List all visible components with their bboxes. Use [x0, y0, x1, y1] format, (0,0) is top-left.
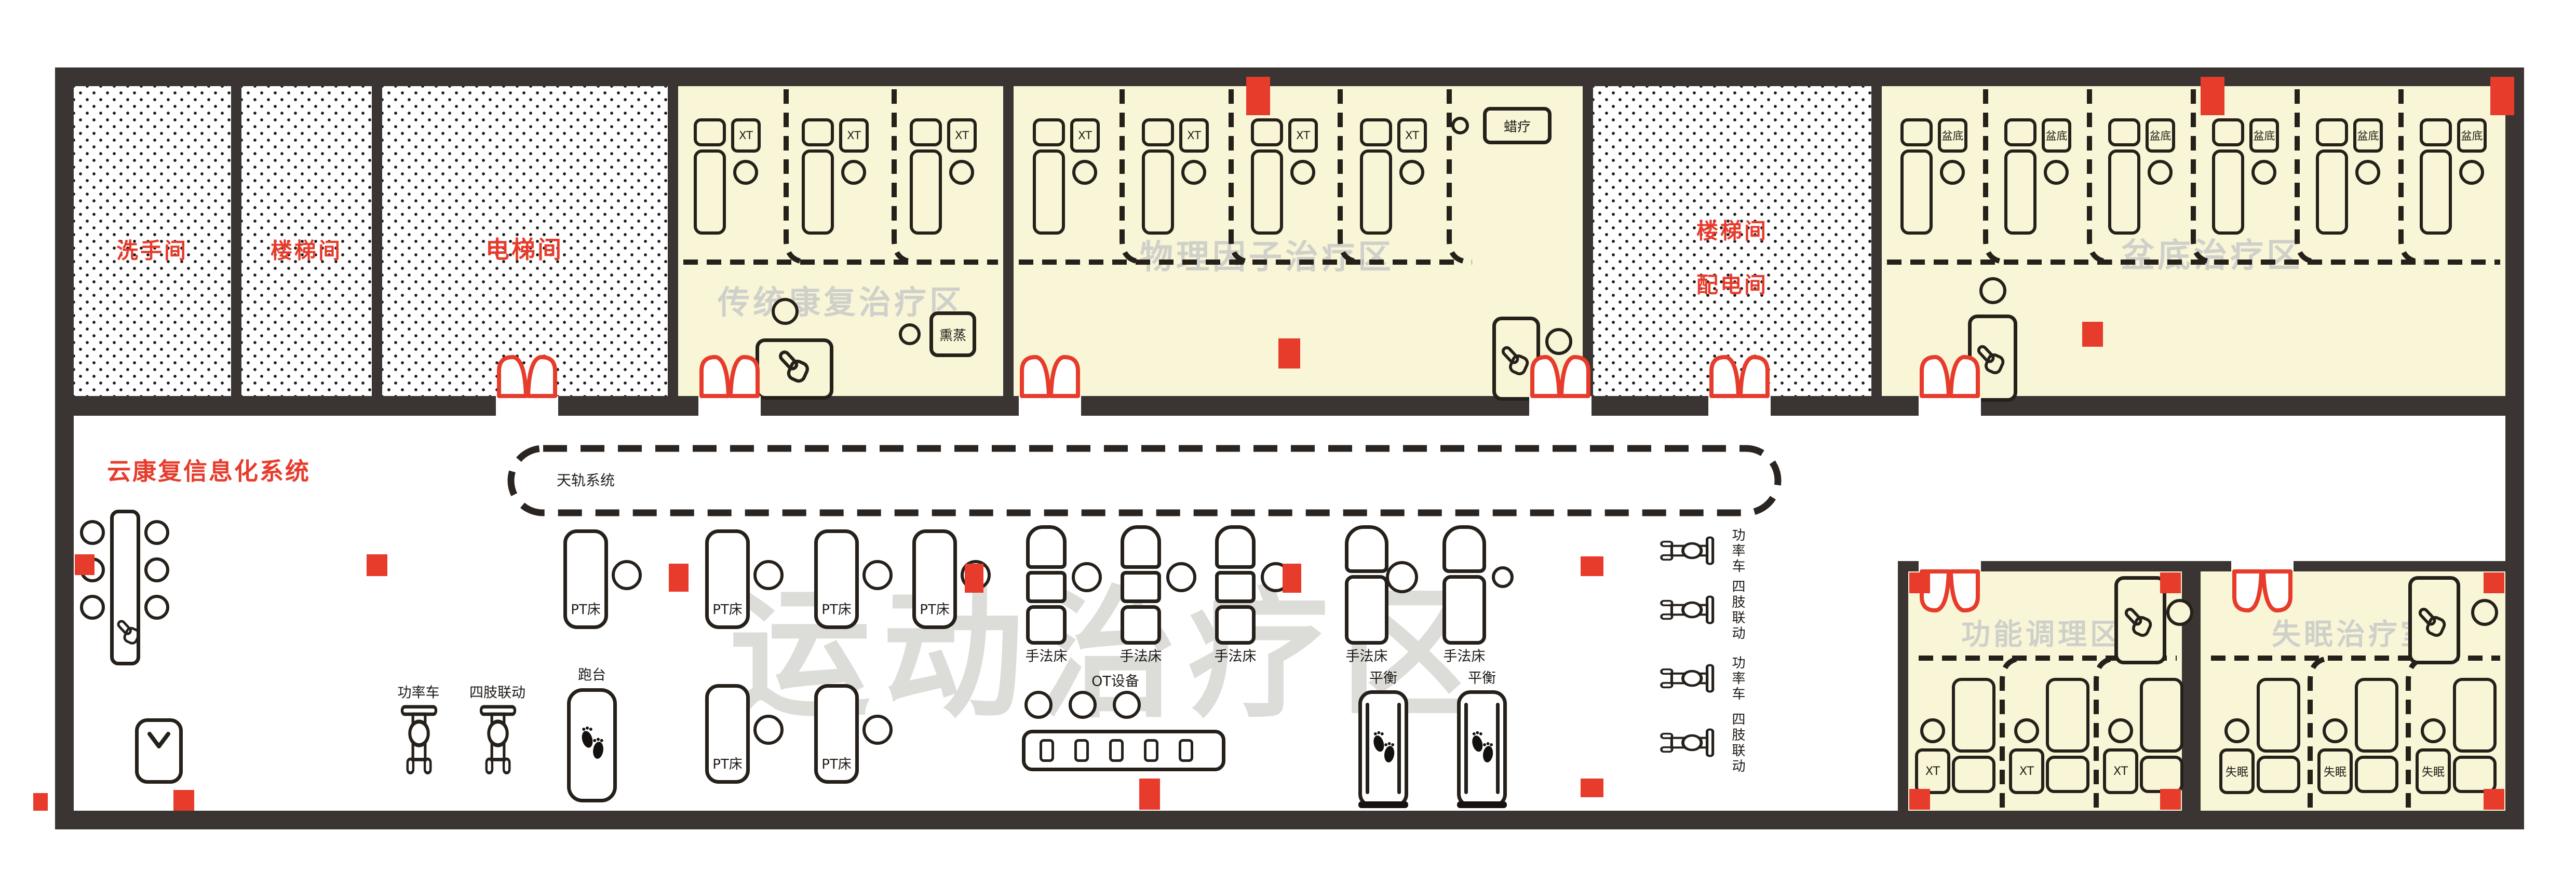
manual-bed-head	[1345, 525, 1388, 573]
red-marker	[965, 564, 983, 593]
room-name-washroom: 洗手间	[116, 234, 188, 265]
system-title: 云康复信息化系统	[107, 453, 311, 487]
ceiling-track-label: 天轨系统	[557, 469, 615, 490]
door-gap	[496, 396, 558, 416]
desk	[2408, 576, 2460, 664]
bed	[2212, 149, 2244, 235]
device-box: 盆底	[2042, 118, 2071, 153]
manual-bed-mid	[1215, 571, 1256, 603]
red-marker	[1139, 779, 1160, 810]
manual-bed-head	[1121, 525, 1161, 569]
stool-icon	[949, 160, 974, 185]
watermark-pelvic-floor: 盆底治疗区	[2121, 229, 2303, 277]
door-gap	[1019, 396, 1081, 416]
bed-pillow	[910, 118, 942, 146]
treadmill-label: 跑台	[578, 664, 606, 684]
desk	[1968, 315, 2017, 402]
stool-icon	[80, 595, 105, 620]
bed-pillow	[1900, 118, 1933, 146]
treadmill	[567, 688, 617, 802]
manual-bed-foot	[1026, 605, 1067, 645]
power-bike-label: 功率车	[398, 681, 440, 702]
stool-icon	[772, 298, 799, 325]
watermark-physical-factor: 物理因子治疗区	[1140, 230, 1394, 278]
wall	[2182, 561, 2201, 811]
bed-pillow	[2004, 118, 2036, 146]
device-box: XT	[1397, 118, 1427, 153]
wall	[1003, 86, 1014, 396]
wall	[1898, 561, 1908, 811]
bed	[1360, 149, 1392, 235]
bed	[1033, 149, 1065, 235]
stool-icon	[2355, 160, 2380, 185]
wall-left	[55, 67, 74, 829]
bed-pillow	[2108, 118, 2140, 146]
pt-bed-label: PT床	[709, 754, 746, 773]
device-box: XT	[731, 118, 761, 153]
stool-icon	[2108, 718, 2133, 743]
bed-pillow	[2316, 118, 2348, 146]
room-name-stair-power-1: 楼梯间	[1696, 214, 1768, 245]
red-marker	[669, 564, 689, 592]
red-marker	[1278, 338, 1300, 369]
bed	[910, 149, 942, 235]
limb-linkage-label: 四肢联动	[469, 681, 525, 702]
red-marker	[1909, 572, 1930, 593]
manual-bed-head	[1215, 525, 1256, 569]
floor-plan: 云康复信息化系统 天轨系统 洗手间 楼梯间 电梯间 楼梯间 配电间 传统康复治疗…	[0, 0, 2576, 887]
bed	[2257, 678, 2300, 753]
wall	[1871, 86, 1882, 396]
wall	[1898, 561, 2505, 571]
manual-bed-foot	[1121, 605, 1161, 645]
bed	[1142, 149, 1174, 235]
red-marker	[1581, 779, 1603, 797]
bike-machine-icon	[1661, 665, 1712, 691]
balance-bar	[1358, 801, 1408, 808]
fumigation-box: 熏蒸	[929, 311, 976, 357]
device-box: XT	[1915, 748, 1950, 794]
pt-bed-label: PT床	[818, 754, 855, 773]
stool-icon	[1072, 562, 1102, 592]
red-marker	[2484, 789, 2504, 810]
device-box: 失眠	[2219, 748, 2255, 794]
machine-label: 功率车	[1728, 656, 1747, 702]
manual-bed-label: 手法床	[1120, 645, 1162, 665]
bed-pillow	[2140, 756, 2183, 793]
wax-therapy-box: 蜡疗	[1483, 107, 1552, 144]
wall-top	[55, 67, 2524, 86]
stool-icon	[1920, 718, 1945, 743]
device-box: XT	[839, 118, 869, 153]
chair	[135, 718, 183, 784]
device-box: 盆底	[1938, 118, 1967, 153]
manual-bed-mid	[1026, 571, 1067, 603]
stool-icon	[2251, 160, 2276, 185]
pt-bed-label: PT床	[818, 599, 855, 618]
stool-icon	[1072, 160, 1097, 185]
red-marker	[173, 790, 194, 811]
door-gap	[698, 396, 761, 416]
bed	[694, 149, 726, 235]
door-gap	[2231, 561, 2294, 571]
bed-pillow	[802, 118, 834, 146]
pt-bed: PT床	[912, 529, 957, 629]
stool-icon	[144, 557, 169, 582]
bed-pillow	[2420, 118, 2452, 146]
room-name-elevator: 电梯间	[485, 231, 563, 265]
red-marker	[1909, 789, 1930, 810]
stool-icon	[2014, 718, 2039, 743]
bed-pillow	[1251, 118, 1283, 146]
desk	[756, 338, 833, 400]
bed-pillow	[1360, 118, 1392, 146]
manual-bed-label: 手法床	[1215, 645, 1257, 665]
device-box: XT	[2009, 748, 2044, 794]
stool-icon	[1166, 562, 1196, 592]
red-marker	[1246, 77, 1270, 115]
bike-machine-icon	[1661, 537, 1712, 564]
stool-icon	[862, 715, 893, 745]
bed	[2140, 678, 2183, 753]
pt-bed: PT床	[705, 684, 750, 784]
ceiling-track	[511, 448, 1778, 513]
wall	[668, 86, 678, 396]
manual-bed-label: 手法床	[1346, 645, 1388, 665]
bed	[1900, 149, 1933, 235]
manual-bed-body	[1442, 575, 1486, 645]
bed	[2355, 678, 2398, 753]
bed	[2420, 149, 2452, 235]
stool-icon	[862, 560, 893, 590]
red-marker	[2082, 322, 2103, 347]
bed-pillow	[2355, 756, 2398, 793]
pt-bed-label: PT床	[709, 599, 746, 618]
ot-seat	[1179, 739, 1193, 762]
machine-label: 四肢联动	[1728, 712, 1747, 774]
red-marker	[2484, 572, 2504, 593]
bike-machine-icon	[481, 707, 515, 773]
reception-table	[110, 510, 140, 665]
device-box: 盆底	[2146, 118, 2175, 153]
bed	[2046, 678, 2089, 753]
stool-icon	[2459, 160, 2484, 185]
device-box: XT	[1179, 118, 1209, 153]
red-marker	[1283, 564, 1301, 593]
wall	[372, 86, 382, 396]
bike-machine-icon	[1661, 596, 1712, 623]
pt-bed: PT床	[705, 529, 750, 629]
stool-icon	[2224, 718, 2249, 743]
red-marker	[2160, 572, 2181, 593]
manual-bed-label: 手法床	[1026, 645, 1068, 665]
stool-icon	[1451, 117, 1469, 134]
stool-icon	[1386, 561, 1418, 593]
wall-right	[2505, 67, 2524, 829]
ot-seat	[1144, 739, 1158, 762]
bed-pillow	[2212, 118, 2244, 146]
bike-machine-icon	[1661, 729, 1712, 756]
ot-seat	[1040, 739, 1054, 762]
stool-icon	[1069, 691, 1097, 719]
stool-icon	[1290, 160, 1315, 185]
stool-icon	[753, 715, 784, 745]
red-marker	[2160, 789, 2181, 810]
bed	[2108, 149, 2140, 235]
device-box: 失眠	[2416, 748, 2451, 794]
room-name-stair-power-2: 配电间	[1696, 268, 1768, 299]
pt-bed-label: PT床	[567, 599, 604, 618]
red-marker	[367, 554, 387, 576]
bed	[2004, 149, 2036, 235]
stool-icon	[1024, 691, 1053, 719]
manual-bed-head	[1026, 525, 1067, 569]
stool-icon	[2421, 718, 2446, 743]
stool-icon	[733, 160, 758, 185]
manual-bed-foot	[1215, 605, 1256, 645]
room-name-stairwell: 楼梯间	[271, 234, 342, 265]
stool-icon	[841, 160, 866, 185]
manual-bed-body	[1345, 575, 1388, 645]
wall-mid	[55, 396, 2524, 416]
stool-icon	[1492, 566, 1514, 588]
device-box: 失眠	[2317, 748, 2353, 794]
stool-icon	[1940, 160, 1965, 185]
red-marker	[2490, 77, 2514, 115]
bed	[2453, 678, 2497, 753]
balance-device	[1358, 690, 1408, 808]
desk	[1492, 317, 1540, 401]
bed	[1251, 149, 1283, 235]
bed	[802, 149, 834, 235]
bed-pillow	[694, 118, 726, 146]
device-box: XT	[1288, 118, 1318, 153]
door-gap	[1919, 561, 1981, 571]
device-box: 盆底	[2353, 118, 2383, 153]
balance-bar	[1457, 801, 1507, 808]
door-gap	[1919, 396, 1981, 416]
device-box: XT	[947, 118, 977, 153]
stool-icon	[2044, 160, 2069, 185]
wall	[231, 86, 241, 396]
stool-icon	[1545, 328, 1572, 355]
device-box: XT	[2103, 748, 2138, 794]
wall-bottom	[55, 811, 2524, 829]
ot-device-label: OT设备	[1091, 670, 1139, 690]
balance-label: 平衡	[1369, 667, 1397, 687]
balance-label: 平衡	[1468, 667, 1496, 687]
bed-pillow	[1033, 118, 1065, 146]
stool-icon	[753, 560, 784, 590]
stool-icon	[899, 323, 921, 345]
device-box: 盆底	[2249, 118, 2279, 153]
pt-bed: PT床	[814, 684, 859, 784]
bed-pillow	[1142, 118, 1174, 146]
red-marker	[75, 554, 95, 575]
stool-icon	[2471, 599, 2498, 626]
bed-pillow	[2046, 756, 2089, 793]
door-gap	[1708, 396, 1771, 416]
stool-icon	[1113, 691, 1141, 719]
bed	[1952, 678, 1995, 753]
stool-icon	[1979, 277, 2006, 304]
wall	[1583, 86, 1593, 396]
machine-label: 四肢联动	[1728, 579, 1747, 642]
ot-seat	[1109, 739, 1124, 762]
balance-device	[1457, 690, 1507, 808]
ot-seat	[1074, 739, 1089, 762]
device-box: 盆底	[2457, 118, 2487, 153]
stool-icon	[80, 520, 105, 545]
device-box: XT	[1070, 118, 1100, 153]
stool-icon	[144, 595, 169, 620]
desk	[2114, 576, 2166, 664]
machine-label: 功率车	[1728, 528, 1747, 575]
red-marker	[2201, 77, 2224, 115]
bike-machine-icon	[402, 707, 436, 773]
bed-pillow	[2257, 756, 2300, 793]
bed	[2316, 149, 2348, 235]
stool-icon	[144, 520, 169, 545]
red-marker	[33, 793, 48, 811]
pt-bed: PT床	[563, 529, 608, 629]
watermark-traditional-rehab: 传统康复治疗区	[718, 276, 965, 323]
stool-icon	[612, 560, 642, 590]
watermark-function-conditioning: 功能调理区	[1961, 611, 2122, 653]
stool-icon	[1399, 160, 1424, 185]
manual-bed-head	[1442, 525, 1486, 573]
red-marker	[1581, 556, 1603, 576]
manual-bed-mid	[1121, 571, 1161, 603]
stool-icon	[2166, 599, 2193, 626]
stool-icon	[1181, 160, 1206, 185]
door-gap	[1529, 396, 1592, 416]
manual-bed-label: 手法床	[1444, 645, 1486, 665]
pt-bed: PT床	[814, 529, 859, 629]
bed-pillow	[2453, 756, 2497, 793]
stool-icon	[2323, 718, 2348, 743]
bed-pillow	[1952, 756, 1995, 793]
pt-bed-label: PT床	[916, 599, 953, 618]
stool-icon	[2148, 160, 2173, 185]
